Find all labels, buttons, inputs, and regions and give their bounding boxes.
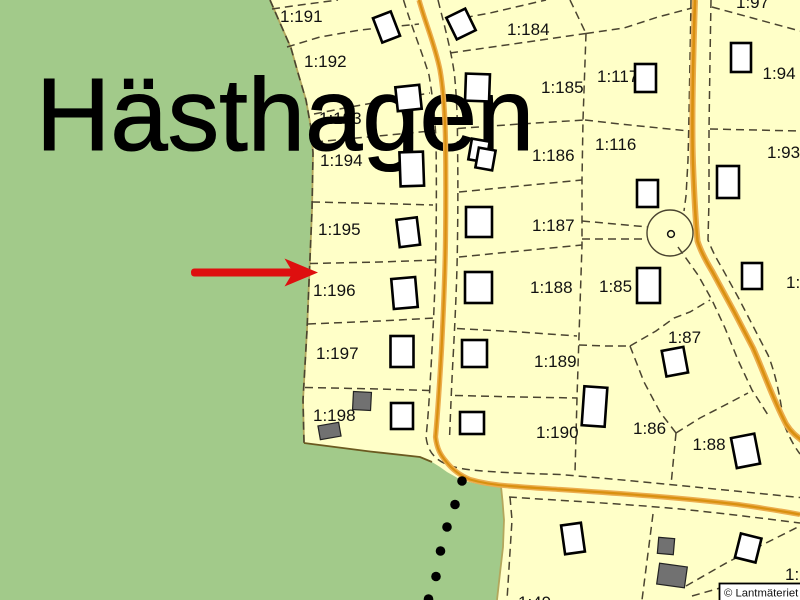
svg-text:1:97: 1:97 xyxy=(736,0,769,12)
svg-text:1:94: 1:94 xyxy=(763,64,796,83)
svg-text:1:5: 1:5 xyxy=(786,273,800,292)
svg-text:1:187: 1:187 xyxy=(532,216,575,235)
svg-text:1:86: 1:86 xyxy=(633,419,666,438)
svg-text:1:88: 1:88 xyxy=(693,435,726,454)
svg-text:1:117: 1:117 xyxy=(597,67,638,86)
svg-text:1:85: 1:85 xyxy=(599,277,632,296)
svg-text:1:184: 1:184 xyxy=(507,20,550,39)
svg-text:1:186: 1:186 xyxy=(532,146,575,165)
svg-text:1:191: 1:191 xyxy=(280,7,323,26)
svg-text:1:185: 1:185 xyxy=(541,78,584,97)
svg-text:© Lantmäteriet: © Lantmäteriet xyxy=(724,588,799,600)
svg-text:1:: 1: xyxy=(785,565,799,584)
svg-text:1:195: 1:195 xyxy=(318,220,361,239)
svg-text:1:189: 1:189 xyxy=(534,352,577,371)
svg-text:1:116: 1:116 xyxy=(595,135,636,154)
svg-text:1:188: 1:188 xyxy=(530,278,573,297)
svg-text:1:190: 1:190 xyxy=(536,423,579,442)
svg-text:1:49: 1:49 xyxy=(518,593,551,600)
svg-text:1:197: 1:197 xyxy=(316,344,359,363)
svg-text:1:196: 1:196 xyxy=(313,281,356,300)
svg-text:1:87: 1:87 xyxy=(668,328,701,347)
svg-text:Hästhagen: Hästhagen xyxy=(36,57,534,172)
svg-text:1:93: 1:93 xyxy=(767,143,800,162)
svg-text:1:198: 1:198 xyxy=(313,406,356,425)
